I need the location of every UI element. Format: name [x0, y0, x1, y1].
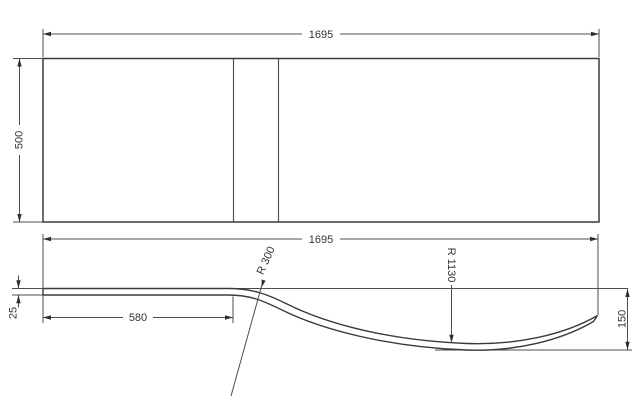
end-height-dimension: 150	[617, 289, 630, 350]
arrowhead-right-icon	[225, 315, 233, 319]
arrowhead-left-icon	[43, 237, 51, 241]
small-radius-dimension-label: R 300	[255, 245, 278, 277]
top-width-dimension-label: 1695	[309, 29, 333, 41]
end-height-dimension-label: 150	[617, 310, 629, 328]
arrowhead-left-icon	[43, 32, 51, 36]
arrowhead-down-icon	[625, 342, 629, 350]
small-radius-dimension: R 300	[231, 245, 278, 396]
arrowhead-down-icon	[449, 335, 453, 343]
thickness-dimension: 25	[8, 276, 44, 320]
front-height-dimension: 500	[13, 59, 43, 223]
front-height-dimension-label: 500	[14, 131, 26, 149]
top-view: 1695 500	[13, 29, 599, 222]
arrowhead-icon	[262, 280, 266, 288]
profile-width-dimension-label: 1695	[309, 234, 333, 246]
flat-section-dimension-label: 580	[129, 312, 147, 324]
arrowhead-right-icon	[590, 237, 598, 241]
radius-leader-line	[231, 281, 263, 396]
drawing-sheet: 1695 500 1695	[0, 0, 643, 419]
panel-front-outline	[43, 59, 599, 223]
profile-view: 1695 R 1130 R 300 25	[8, 234, 633, 396]
arrowhead-left-icon	[43, 315, 51, 319]
top-width-dimension: 1695	[43, 29, 599, 57]
arrowhead-down-icon	[16, 280, 20, 288]
arrowhead-right-icon	[591, 32, 599, 36]
panel-profile-outline	[43, 289, 598, 351]
profile-width-dimension: 1695	[43, 234, 598, 323]
thickness-dimension-label: 25	[8, 307, 20, 319]
arrowhead-up-icon	[16, 295, 20, 303]
arrowhead-up-icon	[625, 289, 629, 297]
arrowhead-down-icon	[17, 214, 21, 222]
arrowhead-up-icon	[17, 59, 21, 67]
large-radius-dimension-label: R 1130	[445, 248, 457, 283]
flat-section-dimension: 580	[43, 297, 233, 325]
large-radius-dimension: R 1130	[445, 248, 457, 343]
technical-drawing-canvas: 1695 500 1695	[0, 0, 643, 419]
